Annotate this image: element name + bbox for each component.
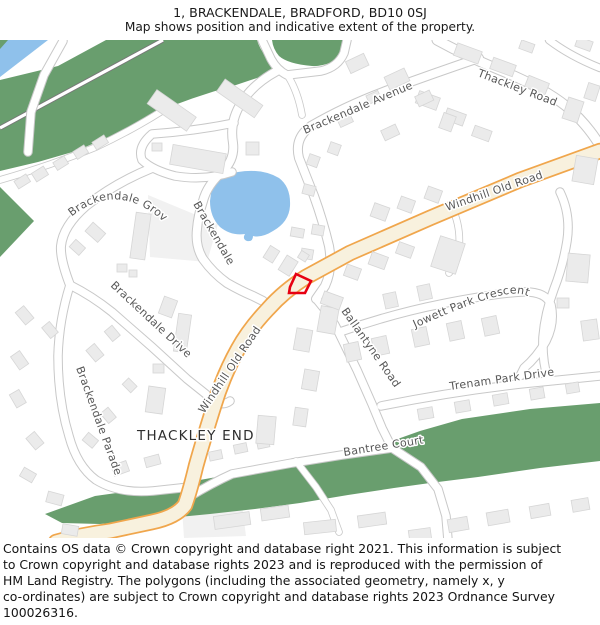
page: 1, BRACKENDALE, BRADFORD, BD10 0SJ Map s…: [0, 0, 600, 625]
copyright-line: 100026316.: [3, 605, 599, 621]
map-svg: Thackley Road Windhill Old Road Windhill…: [0, 40, 600, 538]
copyright-line: HM Land Registry. The polygons (includin…: [3, 573, 599, 589]
copyright-line: to Crown copyright and database rights 2…: [3, 557, 599, 573]
page-title: 1, BRACKENDALE, BRADFORD, BD10 0SJ: [0, 5, 600, 20]
page-subtitle: Map shows position and indicative extent…: [0, 20, 600, 35]
copyright-line: Contains OS data © Crown copyright and d…: [3, 541, 599, 557]
map-canvas: Thackley Road Windhill Old Road Windhill…: [0, 40, 600, 538]
map-header: 1, BRACKENDALE, BRADFORD, BD10 0SJ Map s…: [0, 0, 600, 35]
copyright-notice: Contains OS data © Crown copyright and d…: [3, 541, 599, 621]
place-label-thackley-end: THACKLEY END: [136, 428, 255, 444]
copyright-line: co-ordinates) are subject to Crown copyr…: [3, 589, 599, 605]
